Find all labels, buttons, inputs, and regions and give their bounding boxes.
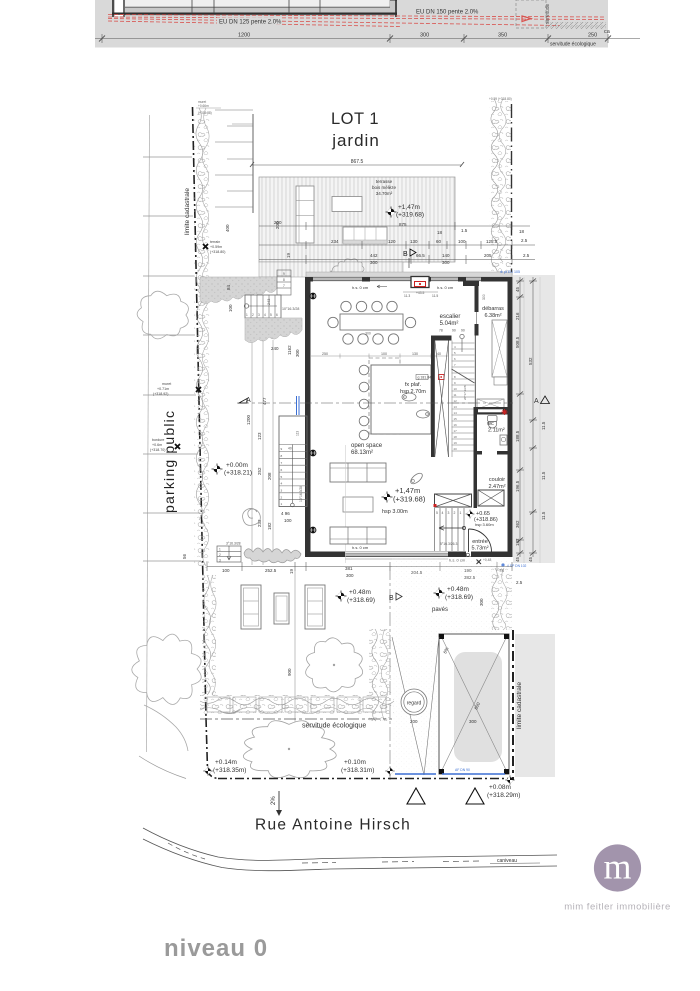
svg-text:182: 182 bbox=[267, 522, 272, 530]
svg-text:14: 14 bbox=[454, 411, 458, 415]
svg-text:100: 100 bbox=[228, 304, 233, 312]
svg-text:servitude écologique: servitude écologique bbox=[550, 42, 596, 48]
svg-text:12: 12 bbox=[454, 399, 458, 403]
svg-text:477: 477 bbox=[262, 397, 267, 405]
svg-text:5: 5 bbox=[436, 511, 438, 515]
svg-text:20: 20 bbox=[454, 447, 458, 451]
svg-text:20*17.3/28: 20*17.3/28 bbox=[463, 385, 467, 400]
svg-text:limite cadastrale: limite cadastrale bbox=[516, 682, 523, 729]
svg-text:40: 40 bbox=[288, 447, 292, 451]
svg-text:(+318.92): (+318.92) bbox=[153, 392, 168, 396]
svg-text:2.5: 2.5 bbox=[516, 580, 523, 585]
svg-text:mim feitler immobilière: mim feitler immobilière bbox=[564, 902, 671, 913]
svg-text:17: 17 bbox=[454, 429, 458, 433]
svg-text:A: A bbox=[534, 398, 539, 405]
svg-text:+0.00m: +0.00m bbox=[226, 462, 248, 469]
svg-text:1: 1 bbox=[219, 548, 221, 552]
svg-text:1: 1 bbox=[246, 313, 248, 317]
svg-text:pavés: pavés bbox=[432, 607, 448, 613]
svg-text:300: 300 bbox=[370, 260, 378, 265]
svg-text:11.5: 11.5 bbox=[541, 421, 546, 430]
svg-text:4: 4 bbox=[281, 482, 283, 486]
svg-text:terrasse: terrasse bbox=[376, 179, 393, 184]
svg-text:8: 8 bbox=[281, 454, 283, 458]
svg-text:3°16.3/28: 3°16.3/28 bbox=[226, 542, 241, 546]
svg-text:+1,47m: +1,47m bbox=[398, 204, 420, 211]
svg-text:+0.59m: +0.59m bbox=[210, 245, 222, 249]
svg-text:300: 300 bbox=[442, 260, 450, 265]
svg-text:68.13m²: 68.13m² bbox=[351, 450, 373, 456]
svg-text:60: 60 bbox=[436, 239, 442, 244]
svg-text:252.5: 252.5 bbox=[265, 568, 277, 573]
svg-text:limite cadastrale: limite cadastrale bbox=[184, 188, 191, 235]
svg-text:+0.66m: +0.66m bbox=[198, 104, 209, 108]
svg-text:5°16.3/26.3: 5°16.3/26.3 bbox=[440, 542, 457, 546]
svg-text:196.5: 196.5 bbox=[515, 480, 520, 492]
svg-text:muret: muret bbox=[162, 382, 171, 386]
svg-text:125.5: 125.5 bbox=[486, 239, 498, 244]
svg-text:15: 15 bbox=[454, 417, 458, 421]
svg-text:900: 900 bbox=[287, 668, 292, 676]
svg-text:ca: ca bbox=[604, 29, 611, 35]
svg-text:250: 250 bbox=[588, 33, 597, 39]
svg-text:regard: regard bbox=[407, 701, 422, 707]
svg-text:4 96: 4 96 bbox=[281, 511, 290, 516]
svg-text:EU DN 150 pente 2.0%: EU DN 150 pente 2.0% bbox=[416, 10, 479, 16]
svg-text:(+318.31m): (+318.31m) bbox=[341, 767, 374, 774]
svg-text:6: 6 bbox=[281, 468, 283, 472]
svg-text:40: 40 bbox=[437, 352, 441, 356]
svg-text:66.5: 66.5 bbox=[416, 253, 425, 258]
svg-text:terrain: terrain bbox=[210, 240, 220, 244]
svg-text:AF DN 90: AF DN 90 bbox=[455, 768, 470, 772]
svg-text:⊕ pt EU 105: ⊕ pt EU 105 bbox=[500, 270, 520, 274]
svg-text:(+318.21): (+318.21) bbox=[224, 470, 252, 477]
svg-text:100: 100 bbox=[381, 352, 387, 356]
svg-text:11.5: 11.5 bbox=[432, 294, 438, 298]
svg-text:532: 532 bbox=[528, 357, 533, 365]
svg-text:+0.71m: +0.71m bbox=[157, 387, 169, 391]
svg-text:19: 19 bbox=[454, 441, 458, 445]
svg-text:2.47m²: 2.47m² bbox=[488, 484, 505, 490]
svg-text:parking public: parking public bbox=[161, 410, 177, 513]
svg-text:300: 300 bbox=[295, 349, 300, 357]
svg-text:servitude écologique: servitude écologique bbox=[302, 723, 366, 730]
svg-text:300: 300 bbox=[346, 573, 354, 578]
svg-text:1: 1 bbox=[460, 511, 462, 515]
svg-text:3: 3 bbox=[258, 313, 260, 317]
svg-text:45: 45 bbox=[528, 556, 533, 562]
svg-text:208: 208 bbox=[267, 472, 272, 480]
svg-text:+0.48m: +0.48m bbox=[349, 589, 371, 596]
svg-text:9: 9 bbox=[281, 447, 283, 451]
svg-text:h.s. 0 cm: h.s. 0 cm bbox=[437, 285, 454, 290]
svg-text:2.11m²: 2.11m² bbox=[488, 428, 505, 434]
svg-text:8: 8 bbox=[283, 278, 285, 282]
svg-text:A: A bbox=[246, 397, 251, 404]
svg-text:240: 240 bbox=[271, 346, 279, 351]
svg-text:1162: 1162 bbox=[287, 345, 292, 355]
svg-text:11.3: 11.3 bbox=[404, 294, 410, 298]
svg-text:+0.48m: +0.48m bbox=[447, 586, 469, 593]
svg-text:EU DN 125 pente 2.0%: EU DN 125 pente 2.0% bbox=[219, 20, 282, 26]
svg-text:3: 3 bbox=[219, 558, 221, 562]
svg-text:442: 442 bbox=[370, 253, 378, 258]
svg-text:16: 16 bbox=[454, 423, 458, 427]
svg-text:hsp 2.70m: hsp 2.70m bbox=[400, 389, 426, 395]
svg-text:+0.08m: +0.08m bbox=[489, 784, 511, 791]
svg-text:(+319.68): (+319.68) bbox=[396, 212, 424, 219]
svg-text:13: 13 bbox=[454, 405, 458, 409]
svg-text:wc: wc bbox=[486, 421, 494, 427]
svg-text:2: 2 bbox=[281, 496, 283, 500]
svg-text:entrée: entrée bbox=[472, 539, 488, 545]
svg-text:5.73m²: 5.73m² bbox=[471, 546, 488, 552]
svg-text:1: 1 bbox=[281, 502, 283, 506]
svg-text:123: 123 bbox=[257, 432, 262, 440]
svg-text:300: 300 bbox=[482, 294, 486, 300]
svg-text:140: 140 bbox=[442, 253, 450, 258]
svg-text:18: 18 bbox=[437, 230, 443, 235]
svg-text:56: 56 bbox=[182, 553, 187, 559]
svg-text:5.04m²: 5.04m² bbox=[440, 321, 459, 327]
svg-text:LOT 1: LOT 1 bbox=[331, 110, 379, 128]
svg-text:100: 100 bbox=[458, 239, 466, 244]
svg-text:11.5: 11.5 bbox=[541, 471, 546, 480]
svg-text:2: 2 bbox=[252, 313, 254, 317]
svg-text:216: 216 bbox=[515, 312, 520, 320]
svg-text:hsp 3.00m: hsp 3.00m bbox=[382, 509, 408, 515]
svg-text:+0.14m: +0.14m bbox=[215, 759, 237, 766]
svg-text:open space: open space bbox=[351, 443, 383, 449]
svg-text:1200: 1200 bbox=[246, 414, 251, 425]
svg-text:1.5: 1.5 bbox=[461, 228, 468, 233]
svg-text:6.38m²: 6.38m² bbox=[484, 313, 501, 319]
svg-text:10: 10 bbox=[454, 387, 458, 391]
svg-text:508.5: 508.5 bbox=[515, 336, 520, 348]
svg-text:+0.6m: +0.6m bbox=[152, 443, 162, 447]
svg-text:couloir: couloir bbox=[489, 477, 505, 483]
svg-text:100: 100 bbox=[284, 518, 292, 523]
svg-text:34.70m²: 34.70m² bbox=[376, 191, 393, 196]
svg-text:3: 3 bbox=[448, 511, 450, 515]
svg-text:200: 200 bbox=[275, 221, 280, 229]
svg-text:205: 205 bbox=[484, 253, 492, 258]
svg-text:7: 7 bbox=[281, 461, 283, 465]
svg-text:+0.59 (+318.80): +0.59 (+318.80) bbox=[489, 97, 512, 101]
svg-text:escalier: escalier bbox=[440, 314, 461, 320]
svg-text:252: 252 bbox=[257, 467, 262, 475]
svg-text:300: 300 bbox=[420, 33, 429, 39]
svg-text:(+318.70): (+318.70) bbox=[150, 448, 165, 452]
svg-text:90: 90 bbox=[461, 329, 465, 333]
svg-text:2.5: 2.5 bbox=[523, 253, 530, 258]
svg-text:(+318.35m): (+318.35m) bbox=[213, 767, 246, 774]
svg-text:débarras: débarras bbox=[482, 306, 504, 312]
svg-text:jardin: jardin bbox=[331, 131, 380, 150]
svg-text:362: 362 bbox=[515, 520, 520, 528]
svg-text:B: B bbox=[403, 251, 408, 258]
svg-text:400: 400 bbox=[225, 224, 230, 232]
svg-text:7: 7 bbox=[454, 363, 456, 367]
svg-text:188.5: 188.5 bbox=[515, 430, 520, 442]
svg-text:h.s. 0 cm: h.s. 0 cm bbox=[352, 285, 369, 290]
svg-text:78: 78 bbox=[439, 329, 443, 333]
svg-text:5: 5 bbox=[454, 351, 456, 355]
svg-text:m: m bbox=[603, 847, 631, 887]
svg-text:h.s. 0 cm: h.s. 0 cm bbox=[352, 545, 369, 550]
svg-text:(+318.29m): (+318.29m) bbox=[487, 792, 520, 799]
svg-text:120: 120 bbox=[388, 239, 396, 244]
svg-text:6: 6 bbox=[454, 357, 456, 361]
svg-text:Rue Antoine Hirsch: Rue Antoine Hirsch bbox=[255, 817, 411, 834]
svg-text:113: 113 bbox=[296, 431, 300, 436]
svg-text:18: 18 bbox=[454, 435, 458, 439]
svg-text:servitude: servitude bbox=[545, 3, 551, 24]
svg-text:6: 6 bbox=[276, 313, 278, 317]
svg-text:300: 300 bbox=[469, 719, 477, 724]
svg-text:867.5: 867.5 bbox=[351, 159, 364, 165]
svg-text:2%: 2% bbox=[271, 796, 277, 805]
svg-text:1200: 1200 bbox=[238, 33, 250, 39]
svg-text:4: 4 bbox=[454, 345, 456, 349]
svg-text:18: 18 bbox=[519, 229, 525, 234]
svg-text:5: 5 bbox=[281, 475, 283, 479]
svg-text:11: 11 bbox=[454, 393, 457, 397]
svg-text:234: 234 bbox=[331, 239, 339, 244]
svg-text:+0.10m: +0.10m bbox=[344, 759, 366, 766]
svg-text:350: 350 bbox=[498, 33, 507, 39]
svg-text:5: 5 bbox=[270, 313, 272, 317]
svg-text:9: 9 bbox=[283, 272, 285, 276]
svg-text:4: 4 bbox=[442, 511, 444, 515]
svg-text:100: 100 bbox=[222, 568, 230, 573]
svg-text:2.5: 2.5 bbox=[521, 238, 528, 243]
svg-text:90: 90 bbox=[452, 329, 456, 333]
svg-text:2: 2 bbox=[454, 511, 456, 515]
svg-text:bordure: bordure bbox=[152, 438, 164, 442]
svg-text:hsp 3.60m: hsp 3.60m bbox=[475, 522, 494, 527]
svg-text:10°16.3/28: 10°16.3/28 bbox=[299, 486, 303, 502]
svg-text:niveau 0: niveau 0 bbox=[164, 935, 268, 962]
svg-text:130: 130 bbox=[412, 352, 418, 356]
svg-text:fx plaf.: fx plaf. bbox=[405, 382, 422, 388]
svg-text:7: 7 bbox=[283, 284, 285, 288]
svg-text:+43.5: +43.5 bbox=[416, 291, 425, 295]
svg-text:45: 45 bbox=[515, 556, 520, 562]
svg-text:9: 9 bbox=[454, 381, 456, 385]
svg-text:10°16.3/28: 10°16.3/28 bbox=[282, 307, 299, 311]
svg-text:g 181.84: g 181.84 bbox=[418, 376, 432, 380]
svg-text:bois mélèze: bois mélèze bbox=[372, 185, 397, 190]
svg-text:3: 3 bbox=[281, 489, 283, 493]
svg-text:19: 19 bbox=[286, 252, 291, 258]
svg-text:2: 2 bbox=[219, 553, 221, 557]
svg-text:84: 84 bbox=[226, 284, 231, 290]
svg-text:130: 130 bbox=[410, 239, 418, 244]
svg-text:(+318.69): (+318.69) bbox=[445, 594, 473, 601]
svg-text:381: 381 bbox=[345, 566, 353, 571]
svg-text:300: 300 bbox=[479, 598, 484, 606]
svg-text:(+318.80): (+318.80) bbox=[210, 250, 225, 254]
svg-text:45: 45 bbox=[515, 286, 520, 292]
svg-text:250: 250 bbox=[322, 352, 328, 356]
svg-text:19: 19 bbox=[289, 568, 294, 574]
svg-text:(+318.69): (+318.69) bbox=[347, 597, 375, 604]
svg-text:243: 243 bbox=[267, 299, 271, 305]
svg-text:11.5: 11.5 bbox=[541, 511, 546, 520]
svg-text:(+319.68): (+319.68) bbox=[393, 495, 426, 504]
svg-text:8: 8 bbox=[454, 375, 456, 379]
svg-text:4: 4 bbox=[264, 313, 266, 317]
